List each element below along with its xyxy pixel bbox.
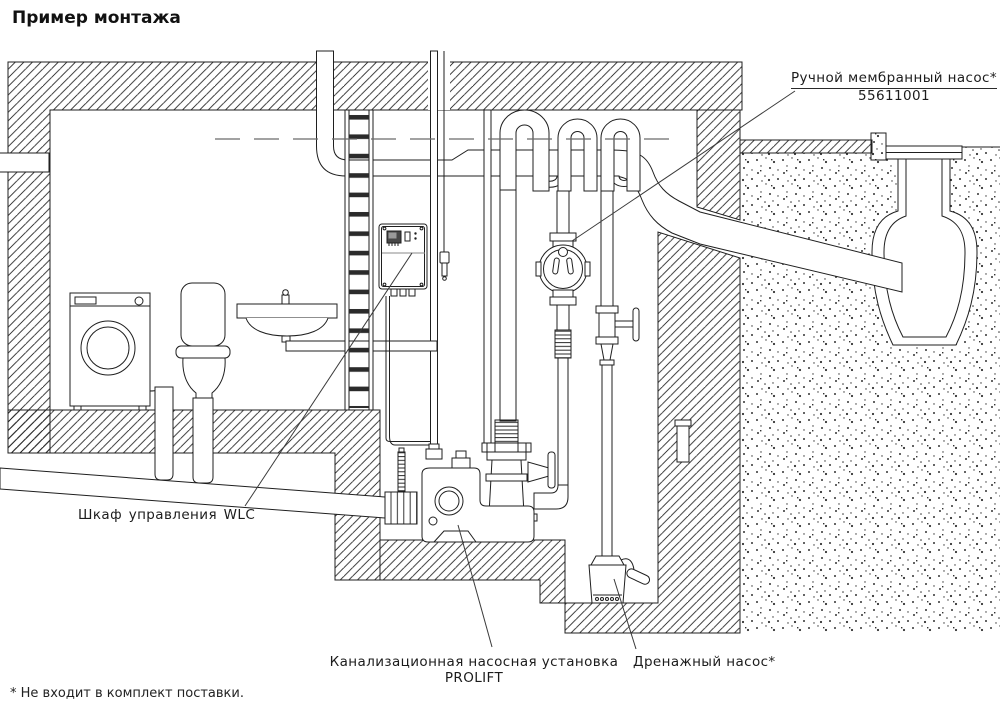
cable-gland xyxy=(400,289,406,296)
cabinet-conduit xyxy=(386,296,431,445)
label-control-cabinet: Шкаф управления WLC xyxy=(78,508,255,524)
sink xyxy=(237,290,437,351)
prolift-unit xyxy=(385,420,555,542)
pump-discharge-pipe xyxy=(500,190,516,421)
washer-standpipe xyxy=(155,387,173,480)
valve-stem xyxy=(615,321,634,327)
label-prolift-unit: Канализационная насосная установка PROLI… xyxy=(312,655,636,687)
toilet-seat xyxy=(176,346,230,358)
pump-left-pipe xyxy=(484,110,491,443)
float-switch xyxy=(625,567,651,585)
toilet-bowl xyxy=(183,358,225,400)
sink-faucet xyxy=(282,295,289,304)
pipe-coupling xyxy=(555,330,571,358)
cable-gland xyxy=(391,289,397,296)
washer-panel xyxy=(75,297,96,304)
cable-gland xyxy=(409,289,415,296)
prolift-model: PROLIFT xyxy=(312,671,636,687)
label-manual-diaphragm-pump: Ручной мембранный насос* 55611001 xyxy=(791,71,997,105)
manual-pump-name: Ручной мембранный насос* xyxy=(791,71,997,89)
prolift-slab xyxy=(380,540,565,603)
shutoff-cone xyxy=(528,462,549,482)
toilet-drain-pipe xyxy=(193,398,213,483)
washer-knob xyxy=(135,297,143,305)
gate-valve xyxy=(596,306,639,557)
manual-pump-code: 55611001 xyxy=(791,89,997,105)
level-pipe-fitting xyxy=(426,449,442,459)
inlet-sleeve xyxy=(385,492,417,524)
control-cabinet xyxy=(379,224,427,296)
drainage-riser-lower xyxy=(602,365,612,557)
ladder xyxy=(345,110,373,410)
level-pipe xyxy=(431,51,438,451)
footnote: * Не входит в комплект поставки. xyxy=(10,686,244,701)
valve-handwheel xyxy=(633,308,639,341)
manhole-cover xyxy=(886,146,962,159)
installation-diagram: Пример монтажа Ручной мембранный насос* … xyxy=(0,0,1000,712)
diagram-canvas xyxy=(0,0,1000,712)
diaphragm-pump-pipe-upper xyxy=(557,191,569,234)
pavement-strip xyxy=(740,140,872,153)
wall-inlet-stub xyxy=(0,153,49,172)
leader-control-cabinet xyxy=(245,253,412,506)
drainage-pump xyxy=(589,556,651,603)
toilet-tank xyxy=(181,283,225,346)
sink-counter xyxy=(237,304,337,318)
washing-machine xyxy=(70,293,162,410)
discharge-coupling xyxy=(495,420,518,443)
manhole-frame xyxy=(871,133,886,160)
upper-right-wall xyxy=(697,110,740,220)
manual-diaphragm-pump xyxy=(536,233,590,488)
label-drainage-pump: Дренажный насос* xyxy=(633,655,776,671)
sink-basin xyxy=(246,318,328,336)
toilet xyxy=(176,283,230,400)
pump-side-lug xyxy=(585,262,590,276)
pump-side-lug xyxy=(536,262,541,276)
wall-sleeve xyxy=(675,420,691,462)
level-control-line xyxy=(428,51,450,451)
level-sensor xyxy=(440,252,449,280)
page-title: Пример монтажа xyxy=(12,8,181,28)
tank-cap xyxy=(452,458,470,468)
prolift-name: Канализационная насосная установка xyxy=(312,655,636,671)
shutoff-handwheel xyxy=(548,452,555,488)
clamp-screw xyxy=(398,452,405,491)
drainage-riser-upper xyxy=(601,191,613,307)
pipe-elbow xyxy=(534,485,568,509)
